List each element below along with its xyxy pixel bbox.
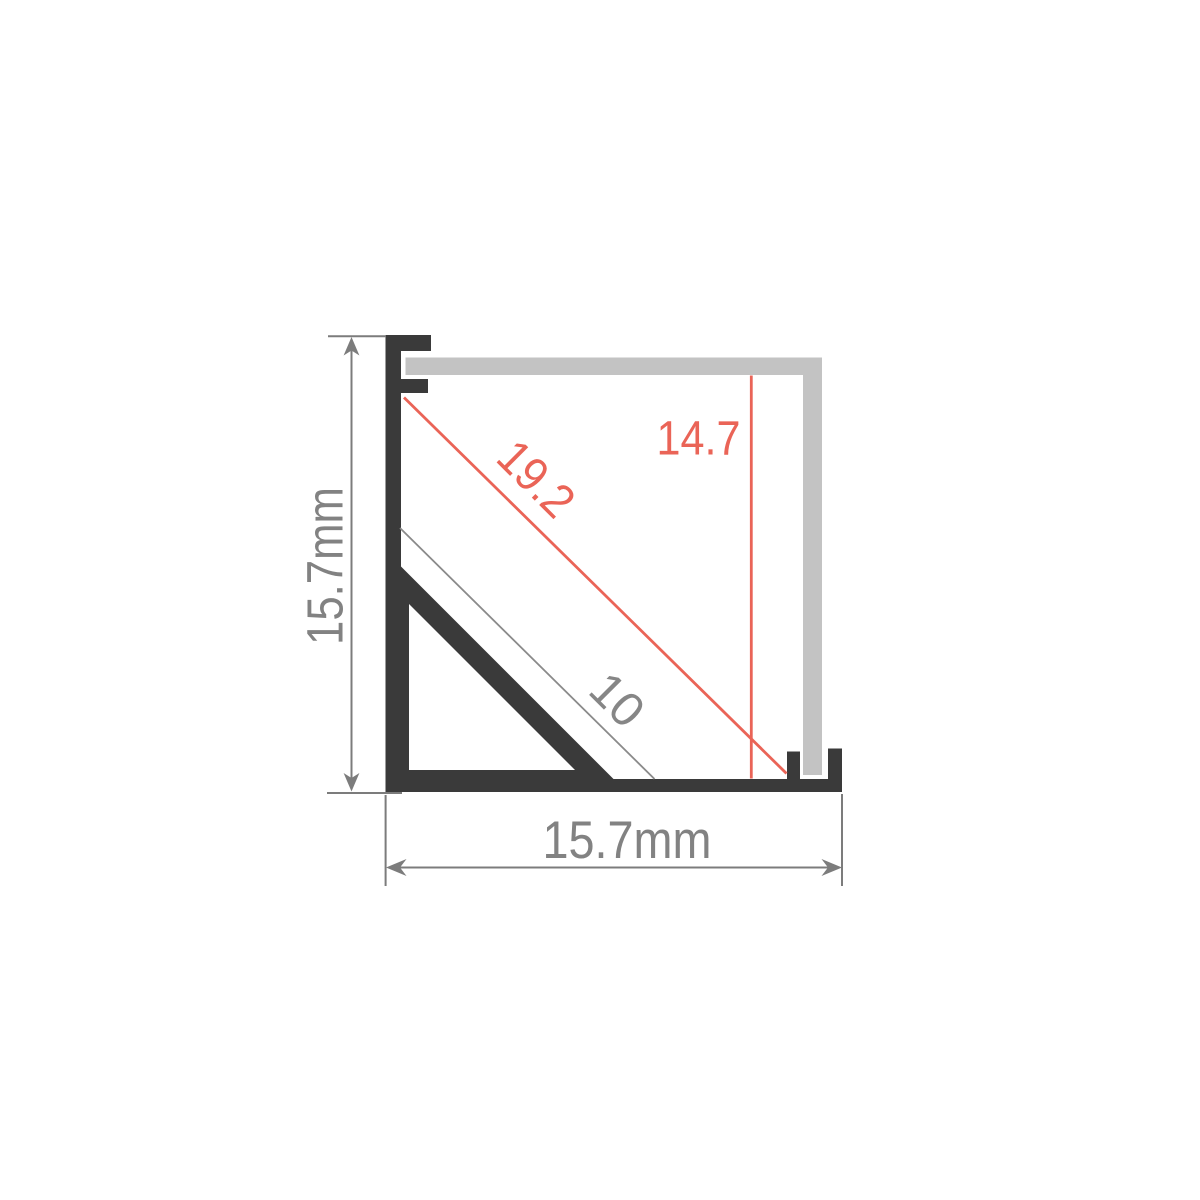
svg-text:15.7mm: 15.7mm (297, 487, 354, 645)
svg-text:15.7mm: 15.7mm (543, 811, 712, 870)
svg-text:14.7: 14.7 (657, 413, 741, 466)
